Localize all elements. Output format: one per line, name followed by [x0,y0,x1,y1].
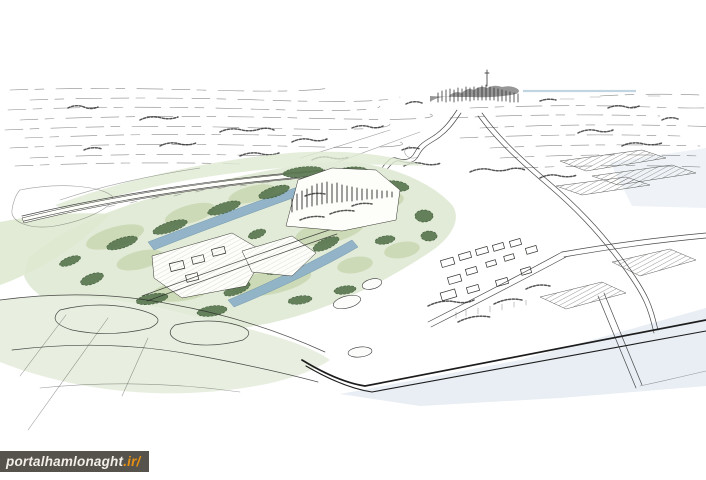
village-road [428,252,566,327]
distant-city-skyline [406,70,660,104]
sketch-canvas: portalhamlonaght.ir/ [0,0,706,480]
hatched-field-plots [540,150,696,309]
city-spire [485,70,489,86]
watermark-badge: portalhamlonaght.ir/ [0,451,149,472]
watermark-text: portalhamlonaght [6,455,123,469]
village [428,233,706,327]
sketch-illustration [0,0,706,480]
watermark-suffix: .ir/ [123,455,140,469]
